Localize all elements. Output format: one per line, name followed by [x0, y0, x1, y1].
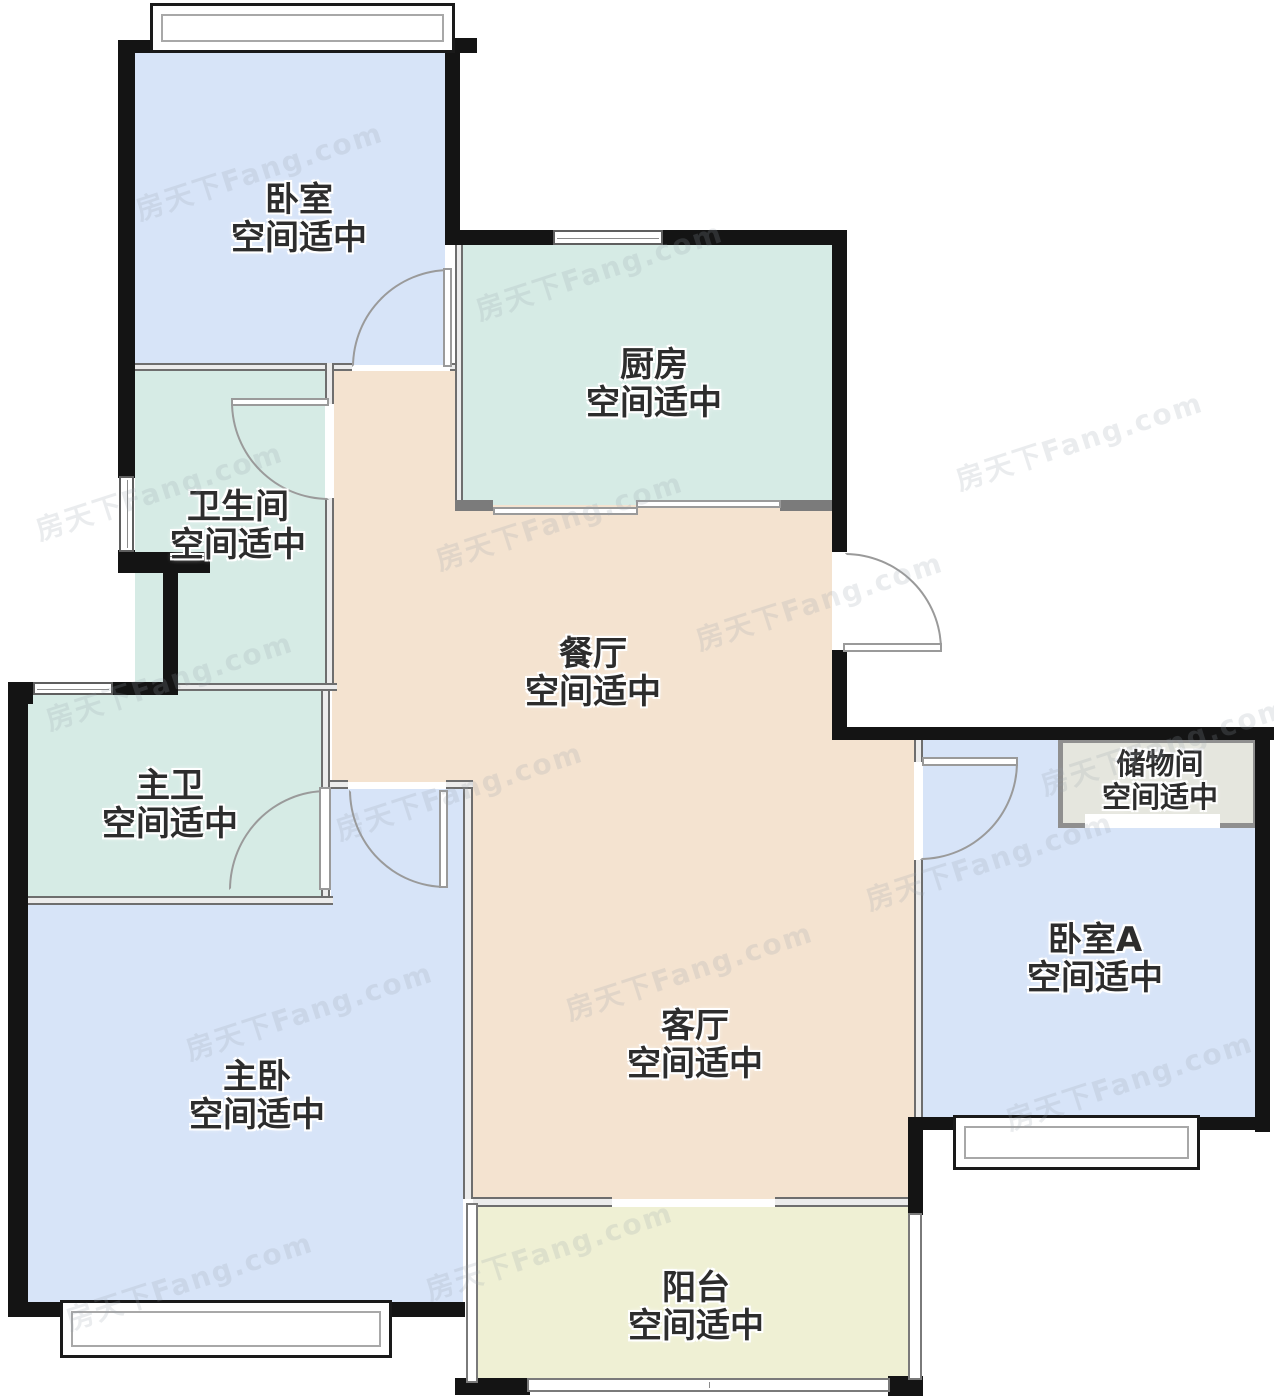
room-condition: 空间适中 [50, 805, 290, 843]
room-condition: 空间适中 [576, 1307, 816, 1345]
room-area-living-strip [832, 740, 914, 1199]
wall-kitchen-bottom-right [780, 500, 832, 511]
wall-right-wing-top [832, 727, 1274, 740]
window-balcony-right-glass [908, 1213, 922, 1380]
wall-living-left [463, 789, 473, 1199]
wall-kitchen-right [832, 230, 847, 552]
room-name: 卧室 [179, 181, 419, 219]
floor-plan: 卧室 空间适中 厨房 空间适中 卫生间 空间适中 餐厅 空间适中 主卫 空间适中… [0, 0, 1274, 1400]
window-bedroom-bay [150, 3, 455, 53]
wall-bedroom-right [445, 40, 460, 245]
room-name: 储物间 [1040, 748, 1274, 781]
room-name: 阳台 [576, 1269, 816, 1307]
wall-masterbath-right-upper [321, 691, 330, 789]
wall-left-upper [118, 40, 135, 478]
window-master-bedroom-bay [60, 1300, 392, 1358]
room-name: 餐厅 [473, 635, 713, 673]
sliding-door-kitchen-panel-1 [493, 507, 638, 515]
room-condition: 空间适中 [473, 673, 713, 711]
room-label-storage: 储物间 空间适中 [1040, 748, 1274, 814]
room-label-bedroom-a: 卧室A 空间适中 [975, 921, 1215, 997]
door-leaf-bathroom [231, 398, 329, 406]
window-kitchen-mullion [557, 238, 659, 239]
door-leaf-entrance [843, 643, 942, 652]
window-bedroom-a-bay-inner [964, 1126, 1189, 1159]
wall-masterbath-top [113, 682, 178, 695]
room-label-bedroom: 卧室 空间适中 [179, 181, 419, 257]
room-condition: 空间适中 [1040, 781, 1274, 814]
room-label-bathroom: 卫生间 空间适中 [118, 488, 358, 564]
window-master-bathroom-mullion [37, 689, 109, 690]
room-label-dining-room: 餐厅 空间适中 [473, 635, 713, 711]
window-kitchen [553, 230, 663, 245]
wall-bedroom-bottom [135, 363, 352, 371]
room-name: 主卫 [50, 767, 290, 805]
window-bedroom-a-bay [953, 1115, 1200, 1170]
wall-living-right-lower [908, 1117, 923, 1215]
wall-balcony-top-right [775, 1197, 908, 1207]
door-leaf-master-bathroom [319, 787, 331, 890]
room-condition: 空间适中 [137, 1096, 377, 1134]
wall-left-lower [8, 682, 28, 1317]
wall-top-left [118, 40, 152, 53]
wall-alcove-top-left [330, 780, 348, 789]
room-area-living-room [473, 780, 832, 1199]
door-leaf-bedroom [443, 268, 452, 367]
room-condition: 空间适中 [118, 526, 358, 564]
room-name: 卧室A [975, 921, 1215, 959]
wall-kitchen-bottom-left [455, 500, 493, 511]
storage-opening [1085, 814, 1220, 828]
window-master-bathroom [33, 682, 113, 695]
wall-entry-below-door [832, 650, 847, 729]
window-balcony-bottom-glass [527, 1378, 890, 1392]
wall-bathroom-masterbath-divider [165, 683, 337, 691]
window-balcony-bottom-mullion [709, 1382, 710, 1388]
wall-balcony-top-left [473, 1197, 612, 1207]
room-label-kitchen: 厨房 空间适中 [534, 346, 774, 422]
wall-alcove-top-right [446, 780, 473, 789]
room-name: 客厅 [575, 1007, 815, 1045]
room-label-master-bathroom: 主卫 空间适中 [50, 767, 290, 843]
room-name: 厨房 [534, 346, 774, 384]
wall-kitchen-top-right [661, 230, 847, 245]
wall-kitchen-top-left [455, 230, 555, 245]
watermark: 房天下Fang.com [950, 381, 1208, 499]
room-name: 主卧 [137, 1058, 377, 1096]
wall-bedroom-a-left-lower [914, 860, 923, 1117]
window-master-bedroom-bay-inner [71, 1311, 381, 1347]
room-label-master-bedroom: 主卧 空间适中 [137, 1058, 377, 1134]
room-label-living-room: 客厅 空间适中 [575, 1007, 815, 1083]
door-leaf-master-bedroom [439, 790, 448, 888]
room-condition: 空间适中 [179, 219, 419, 257]
room-name: 卫生间 [118, 488, 358, 526]
sliding-door-kitchen-panel-2 [636, 500, 781, 508]
room-condition: 空间适中 [575, 1045, 815, 1083]
wall-kitchen-left [455, 240, 463, 505]
window-bedroom-bay-inner [161, 14, 444, 42]
room-condition: 空间适中 [534, 384, 774, 422]
wall-notch-right [163, 562, 178, 693]
window-balcony-left-glass [466, 1203, 478, 1383]
room-condition: 空间适中 [975, 959, 1215, 997]
wall-masterbath-bottom [18, 896, 333, 905]
room-label-balcony: 阳台 空间适中 [576, 1269, 816, 1345]
door-arc-entrance [845, 553, 942, 650]
door-leaf-bedroom-a [922, 757, 1018, 766]
